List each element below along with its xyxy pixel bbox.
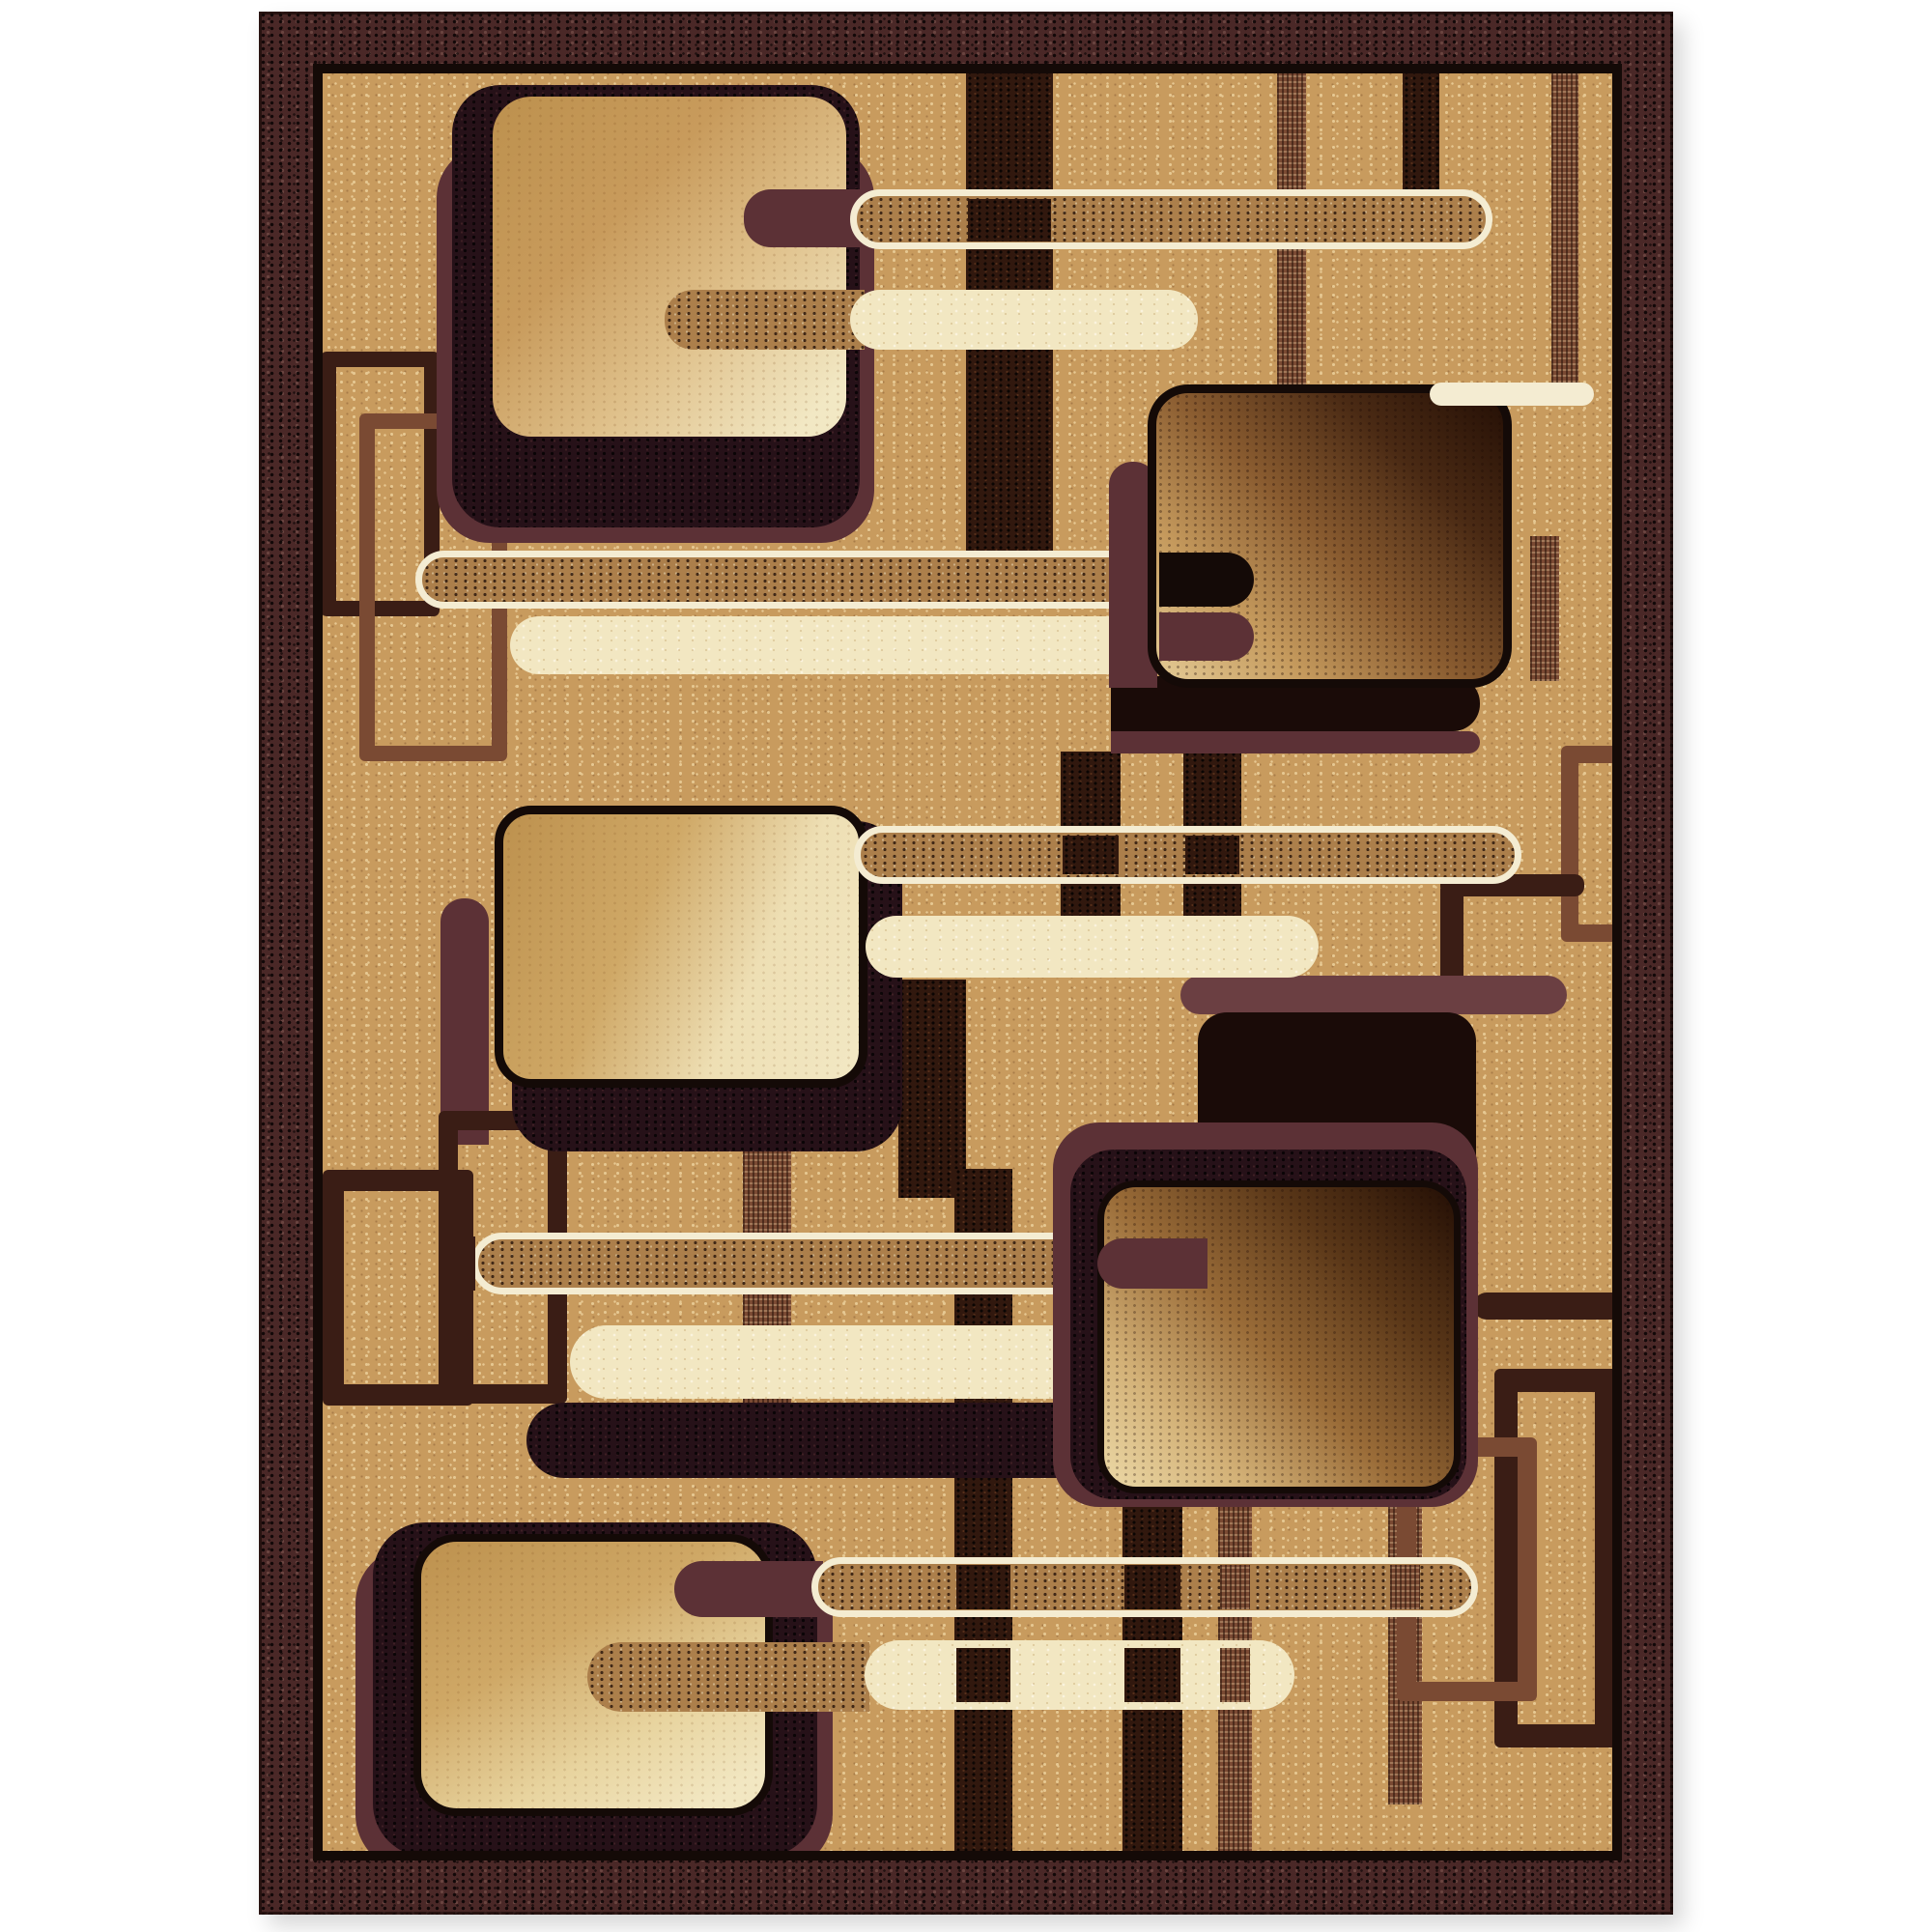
vertical-strap-right-mid (1530, 536, 1559, 681)
white-line-square2-top (1430, 383, 1594, 406)
vertical-strap-mid-3 (898, 980, 966, 1198)
bar-h-cream (570, 1325, 1101, 1399)
bar-d-cream (510, 616, 1154, 674)
bar-a-outlined (850, 189, 1492, 249)
bar-j-strap-crossing-3 (1220, 1565, 1250, 1609)
bar-c-outlined (415, 551, 1154, 609)
bar-g-cap-maroon (1097, 1238, 1207, 1289)
bar-i-dark (526, 1403, 1101, 1478)
bar-e-strap-crossing-2 (1185, 836, 1239, 874)
bar-j-cap-maroon (674, 1561, 823, 1617)
thin-line-bottom-right (1473, 1293, 1612, 1320)
bar-a-cap-maroon (744, 189, 865, 247)
bar-c-cap-black (1159, 553, 1254, 607)
square1-fill (493, 97, 846, 437)
bar-b-cream (850, 290, 1198, 350)
bar-k-cap-tan (587, 1642, 869, 1712)
bar-k-strap-crossing-1 (956, 1648, 1010, 1702)
bar-f-cream (866, 916, 1319, 978)
bar-k-strap-crossing-2 (1124, 1648, 1180, 1702)
bar-k-strap-crossing-3 (1220, 1648, 1250, 1702)
square2-shadow-maroon-band (1111, 731, 1480, 753)
bar-d-cap-maroon (1159, 612, 1254, 661)
bar-g-outlined (471, 1233, 1101, 1294)
thin-outline-square-right-1 (1561, 746, 1612, 942)
vertical-strap-top-right (1551, 73, 1578, 394)
bar-b-cap-tan (665, 290, 865, 350)
rug-field (323, 73, 1612, 1851)
bar-g-strap-crossing (439, 1236, 475, 1291)
bar-j-strap-crossing-1 (956, 1565, 1010, 1609)
square4-shadow-top-band (1180, 976, 1567, 1014)
square3-fill (495, 806, 867, 1088)
square4-fill (1097, 1180, 1461, 1493)
rug (259, 12, 1673, 1915)
square3-shadow-left-band (440, 898, 489, 1145)
bar-j-strap-crossing-4 (1390, 1565, 1420, 1609)
bar-a-strap-crossing (968, 199, 1051, 241)
bar-e-strap-crossing-1 (1063, 836, 1119, 874)
bar-j-strap-crossing-2 (1124, 1565, 1180, 1609)
vertical-strap-top-3 (1403, 73, 1439, 208)
photo-canvas (0, 0, 1932, 1932)
thin-line-right-vertical (1440, 889, 1463, 980)
